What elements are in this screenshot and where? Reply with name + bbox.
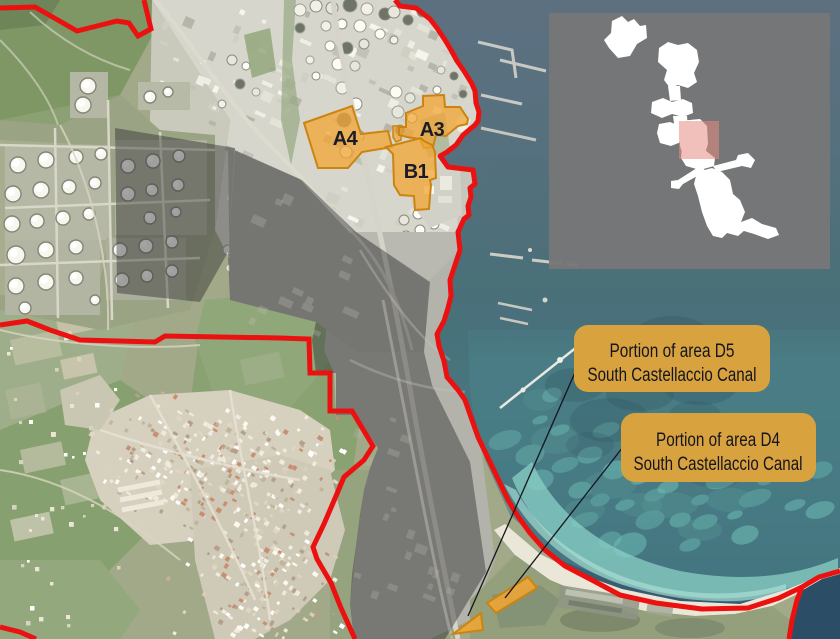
svg-text:Portion of area D4: Portion of area D4 <box>656 430 780 451</box>
svg-text:Portion of area D5: Portion of area D5 <box>610 341 735 362</box>
svg-text:B1: B1 <box>404 161 429 183</box>
svg-text:A3: A3 <box>420 119 445 141</box>
svg-text:South Castellaccio Canal: South Castellaccio Canal <box>588 365 757 386</box>
svg-text:A4: A4 <box>333 128 359 150</box>
svg-text:South Castellaccio Canal: South Castellaccio Canal <box>634 454 803 475</box>
